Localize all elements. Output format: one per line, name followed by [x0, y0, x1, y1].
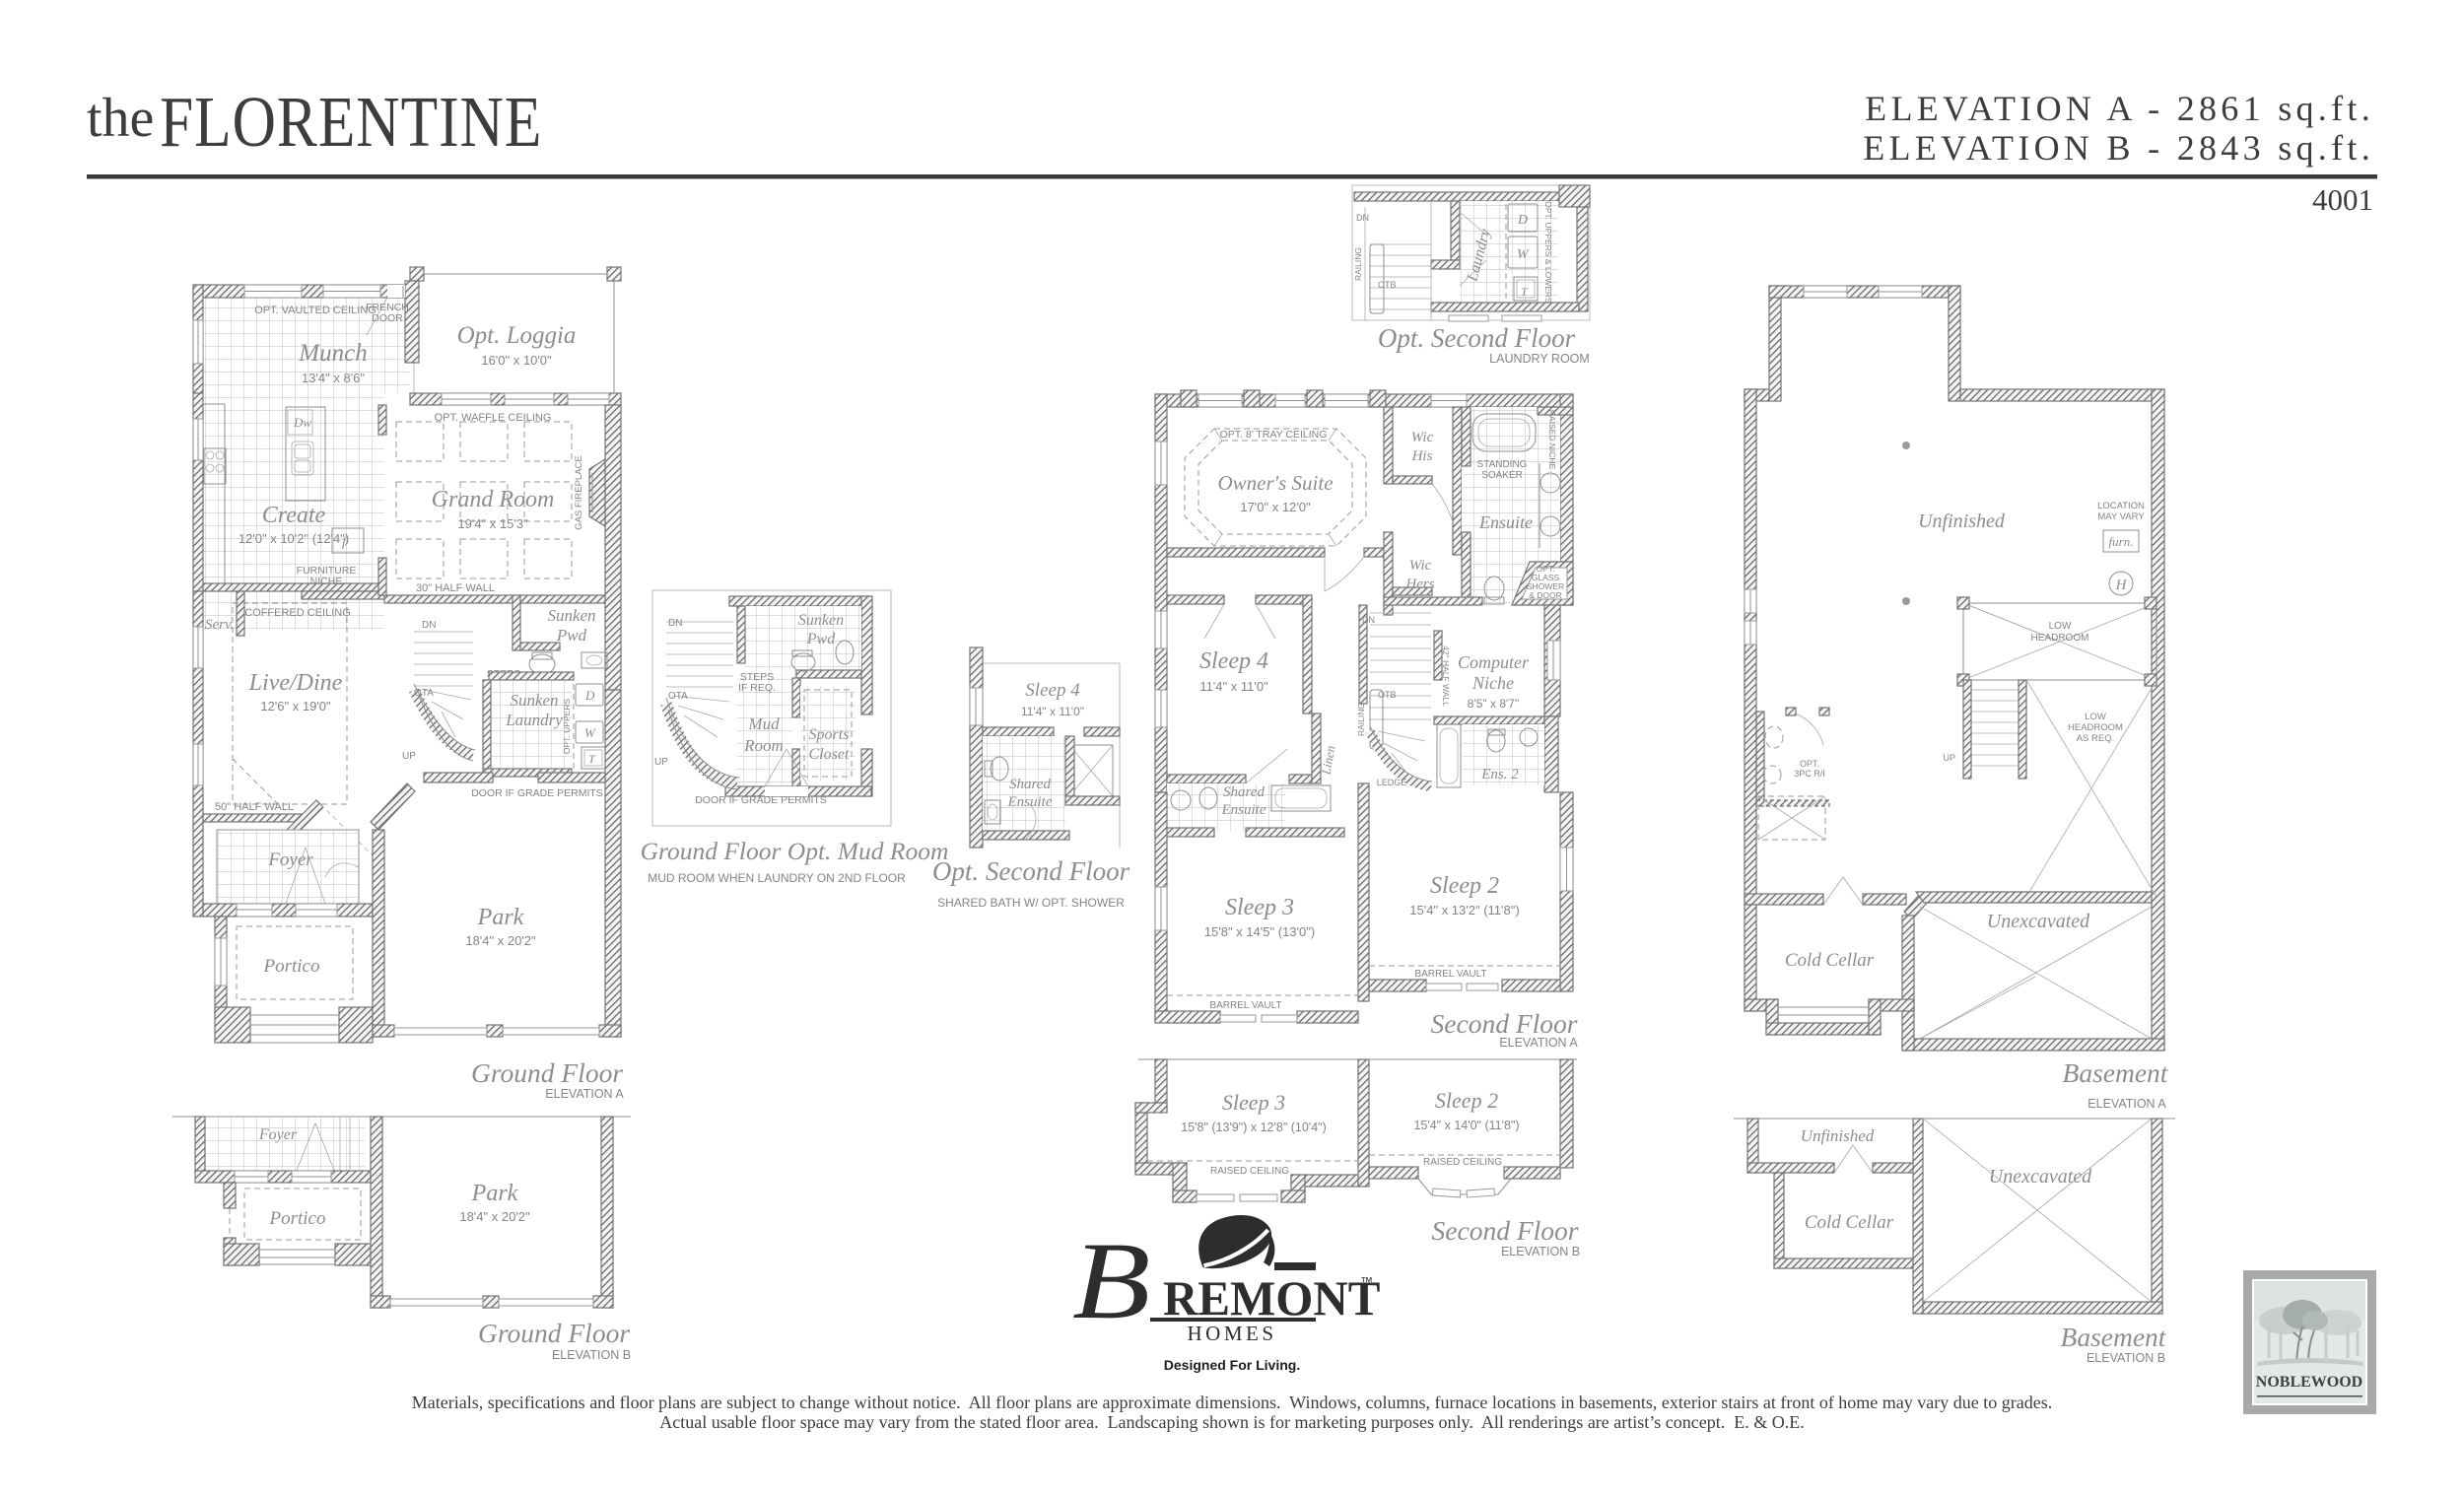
svg-text:UP: UP [402, 751, 416, 762]
svg-text:Ensuite: Ensuite [1478, 512, 1533, 532]
svg-text:Pwd: Pwd [556, 626, 587, 645]
svg-text:HEADROOM: HEADROOM [2031, 633, 2089, 644]
svg-text:UP: UP [654, 757, 668, 768]
svg-text:COFFERED CEILING: COFFERED CEILING [244, 607, 351, 619]
svg-text:19'4" x 15'3": 19'4" x 15'3" [457, 516, 528, 531]
svg-text:Materials, specifications and: Materials, specifications and floor plan… [412, 1393, 2053, 1412]
svg-text:Grand Room: Grand Room [432, 487, 555, 512]
svg-text:Serv.: Serv. [205, 617, 234, 633]
svg-text:Basement: Basement [2061, 1322, 2167, 1352]
svg-text:™: ™ [1360, 1274, 1373, 1289]
svg-text:15'8" (13'9") x 12'8" (10'4"): 15'8" (13'9") x 12'8" (10'4") [1181, 1121, 1327, 1134]
svg-text:Mud: Mud [747, 714, 780, 733]
svg-text:LOW: LOW [2085, 712, 2106, 722]
svg-text:12'0" x 10'2" (12'4"): 12'0" x 10'2" (12'4") [239, 531, 349, 546]
svg-text:NICHE: NICHE [310, 576, 343, 587]
svg-text:DN: DN [1356, 213, 1369, 223]
svg-text:Ens. 2: Ens. 2 [1480, 767, 1519, 782]
svg-text:50" HALF WALL: 50" HALF WALL [215, 801, 294, 813]
svg-text:3PC R/I: 3PC R/I [1794, 769, 1825, 779]
svg-text:Ensuite: Ensuite [1007, 794, 1053, 810]
svg-text:Shared: Shared [1223, 784, 1265, 800]
svg-text:8'5" x 8'7": 8'5" x 8'7" [1468, 697, 1519, 711]
svg-text:Closet: Closet [809, 746, 850, 763]
svg-text:17'0" x 12'0": 17'0" x 12'0" [1240, 500, 1311, 514]
svg-text:RAISED CEILING: RAISED CEILING [1423, 1157, 1502, 1168]
svg-text:RAILING: RAILING [1353, 247, 1363, 281]
svg-text:REMONT: REMONT [1163, 1271, 1380, 1326]
svg-text:Sleep 3: Sleep 3 [1225, 895, 1294, 920]
svg-text:Shared: Shared [1009, 777, 1051, 792]
svg-text:BARREL VAULT: BARREL VAULT [1209, 1000, 1281, 1011]
svg-text:18'4" x 20'2": 18'4" x 20'2" [459, 1209, 530, 1224]
svg-text:30" HALF WALL: 30" HALF WALL [416, 582, 495, 594]
svg-text:12'6" x 19'0": 12'6" x 19'0" [260, 699, 331, 714]
svg-text:MAY VARY: MAY VARY [2097, 511, 2145, 522]
svg-text:SHARED BATH W/ OPT. SHOWER: SHARED BATH W/ OPT. SHOWER [937, 896, 1125, 910]
svg-text:Ground Floor: Ground Floor [478, 1318, 630, 1348]
svg-text:B: B [1072, 1220, 1150, 1342]
svg-text:UP: UP [1943, 753, 1955, 763]
svg-text:Pwd: Pwd [806, 631, 836, 647]
svg-text:ELEVATION B: ELEVATION B [552, 1348, 631, 1362]
svg-text:Unfinished: Unfinished [1801, 1126, 1875, 1145]
svg-text:Ensuite: Ensuite [1221, 802, 1266, 818]
svg-text:OPT.: OPT. [1800, 759, 1819, 769]
svg-text:Sunken: Sunken [547, 606, 595, 625]
svg-text:D: D [1517, 213, 1528, 228]
svg-text:OTA: OTA [414, 688, 434, 699]
svg-text:RAISED CEILING: RAISED CEILING [1210, 1166, 1289, 1177]
svg-text:Ground Floor: Ground Floor [471, 1057, 623, 1088]
svg-text:Opt. Second Floor: Opt. Second Floor [932, 856, 1130, 886]
svg-text:Cold Cellar: Cold Cellar [1785, 950, 1875, 971]
svg-text:11'4" x 11'0": 11'4" x 11'0" [1199, 679, 1268, 694]
svg-text:Opt. Loggia: Opt. Loggia [457, 322, 577, 349]
svg-text:4001: 4001 [2312, 182, 2373, 217]
svg-text:the: the [87, 88, 154, 149]
svg-text:LAUNDRY ROOM: LAUNDRY ROOM [1489, 352, 1590, 366]
svg-text:ELEVATION B: ELEVATION B [2087, 1351, 2165, 1365]
svg-text:Live/Dine: Live/Dine [248, 670, 343, 696]
svg-text:W: W [1517, 247, 1530, 262]
svg-text:13'4" x 8'6": 13'4" x 8'6" [302, 371, 365, 385]
svg-text:Sleep 2: Sleep 2 [1430, 873, 1499, 899]
svg-text:Cold Cellar: Cold Cellar [1805, 1212, 1894, 1233]
svg-text:MUD ROOM WHEN LAUNDRY ON 2ND F: MUD ROOM WHEN LAUNDRY ON 2ND FLOOR [648, 871, 906, 885]
svg-text:DOOR IF GRADE PERMITS: DOOR IF GRADE PERMITS [695, 794, 827, 806]
svg-text:STANDING: STANDING [1477, 459, 1528, 470]
svg-text:Munch: Munch [298, 340, 367, 367]
svg-text:ELEVATION A - 2861 sq.ft.: ELEVATION A - 2861 sq.ft. [1865, 89, 2374, 128]
svg-text:HEADROOM: HEADROOM [2068, 722, 2123, 733]
svg-text:H: H [2115, 578, 2128, 593]
svg-text:15'4" x 14'0" (11'8"): 15'4" x 14'0" (11'8") [1413, 1119, 1519, 1132]
svg-text:Wic: Wic [1409, 558, 1432, 574]
svg-text:Park: Park [471, 1181, 518, 1206]
svg-text:Owner's Suite: Owner's Suite [1217, 471, 1333, 495]
svg-text:Sleep 4: Sleep 4 [1025, 680, 1080, 701]
svg-text:Portico: Portico [263, 956, 320, 977]
svg-text:Sunken: Sunken [510, 691, 558, 710]
svg-text:18'4" x 20'2": 18'4" x 20'2" [465, 933, 536, 948]
svg-text:furn.: furn. [2109, 534, 2134, 549]
svg-text:Foyer: Foyer [267, 849, 313, 870]
svg-text:Room: Room [743, 736, 784, 755]
svg-text:OTB: OTB [1378, 690, 1397, 700]
svg-text:Sleep 4: Sleep 4 [1199, 648, 1268, 674]
svg-text:Basement: Basement [2063, 1057, 2169, 1088]
svg-text:BARREL VAULT: BARREL VAULT [1414, 969, 1486, 980]
svg-text:Sports: Sports [809, 726, 850, 743]
svg-text:D: D [584, 688, 595, 703]
svg-text:Portico: Portico [269, 1208, 326, 1229]
svg-text:OPT. WAFFLE CEILING: OPT. WAFFLE CEILING [435, 412, 552, 424]
svg-text:Foyer: Foyer [258, 1126, 298, 1143]
svg-text:DN: DN [668, 618, 682, 629]
svg-text:Computer: Computer [1458, 652, 1530, 672]
svg-text:Unexcavated: Unexcavated [1987, 911, 2090, 932]
svg-text:GAS FIREPLACE: GAS FIREPLACE [574, 455, 584, 530]
svg-text:Actual usable floor space may: Actual usable floor space may vary from … [659, 1412, 1805, 1432]
svg-text:RAILING: RAILING [1356, 703, 1366, 736]
svg-text:ELEVATION A: ELEVATION A [2088, 1097, 2166, 1111]
svg-text:DOOR IF GRADE PERMITS: DOOR IF GRADE PERMITS [471, 787, 603, 799]
svg-text:OTB: OTB [1378, 280, 1397, 290]
svg-text:42" HALF WALL: 42" HALF WALL [1441, 646, 1451, 707]
svg-text:Laundry: Laundry [505, 711, 563, 729]
svg-text:15'8" x 14'5" (13'0"): 15'8" x 14'5" (13'0") [1204, 924, 1315, 939]
svg-text:Sunken: Sunken [798, 612, 844, 629]
svg-text:Opt. Second Floor: Opt. Second Floor [1378, 323, 1576, 353]
svg-text:Create: Create [262, 503, 326, 528]
svg-text:AS REQ.: AS REQ. [2077, 733, 2115, 744]
svg-text:Sleep 2: Sleep 2 [1435, 1088, 1498, 1113]
svg-text:DN: DN [422, 620, 436, 631]
svg-text:Park: Park [477, 905, 524, 930]
svg-text:11'4" x 11'0": 11'4" x 11'0" [1021, 705, 1084, 718]
svg-text:Dw: Dw [293, 415, 311, 430]
svg-text:Designed For Living.: Designed For Living. [1164, 1357, 1300, 1373]
svg-text:Niche: Niche [1472, 673, 1514, 693]
svg-text:DOOR: DOOR [372, 312, 403, 324]
svg-text:ELEVATION B - 2843 sq.ft.: ELEVATION B - 2843 sq.ft. [1863, 128, 2374, 168]
svg-text:15'4" x 13'2" (11'8"): 15'4" x 13'2" (11'8") [1409, 903, 1519, 917]
svg-text:LOCATION: LOCATION [2097, 501, 2145, 511]
svg-text:ELEVATION B: ELEVATION B [1501, 1245, 1580, 1258]
svg-text:OPT. VAULTED CEILING: OPT. VAULTED CEILING [254, 305, 376, 316]
svg-text:DN: DN [1362, 615, 1375, 625]
svg-text:Unfinished: Unfinished [1918, 510, 2006, 532]
svg-text:Sleep 3: Sleep 3 [1222, 1090, 1285, 1115]
svg-text:16'0" x 10'0": 16'0" x 10'0" [481, 353, 552, 368]
svg-text:Second Floor: Second Floor [1432, 1215, 1579, 1246]
svg-text:OPT. 8' TRAY CEILING: OPT. 8' TRAY CEILING [1220, 429, 1328, 441]
svg-text:IF REQ.: IF REQ. [738, 682, 776, 694]
svg-text:RAISED NICHE: RAISED NICHE [1547, 410, 1557, 470]
svg-text:LEDGE: LEDGE [1377, 778, 1407, 787]
svg-text:Ground Floor Opt. Mud Room: Ground Floor Opt. Mud Room [641, 837, 949, 865]
svg-text:OTA: OTA [668, 691, 688, 702]
svg-text:Second Floor: Second Floor [1431, 1008, 1578, 1039]
svg-text:FLORENTINE: FLORENTINE [160, 82, 542, 162]
svg-text:His: His [1411, 448, 1433, 464]
svg-text:OPT. UPPERS & LOWERS: OPT. UPPERS & LOWERS [1543, 201, 1553, 304]
svg-text:HOMES: HOMES [1187, 1322, 1276, 1345]
svg-text:LOW: LOW [2049, 621, 2072, 632]
svg-text:SOAKER: SOAKER [1481, 470, 1523, 481]
svg-text:ELEVATION A: ELEVATION A [545, 1087, 624, 1101]
svg-text:W: W [584, 725, 596, 740]
svg-text:& DOOR: & DOOR [1529, 590, 1562, 600]
svg-text:NOBLEWOOD: NOBLEWOOD [2256, 1374, 2362, 1391]
svg-text:ELEVATION A: ELEVATION A [1499, 1036, 1578, 1050]
svg-text:Hers: Hers [1404, 577, 1434, 592]
svg-text:OPT. UPPERS: OPT. UPPERS [562, 699, 572, 755]
svg-text:Wic: Wic [1411, 430, 1434, 445]
